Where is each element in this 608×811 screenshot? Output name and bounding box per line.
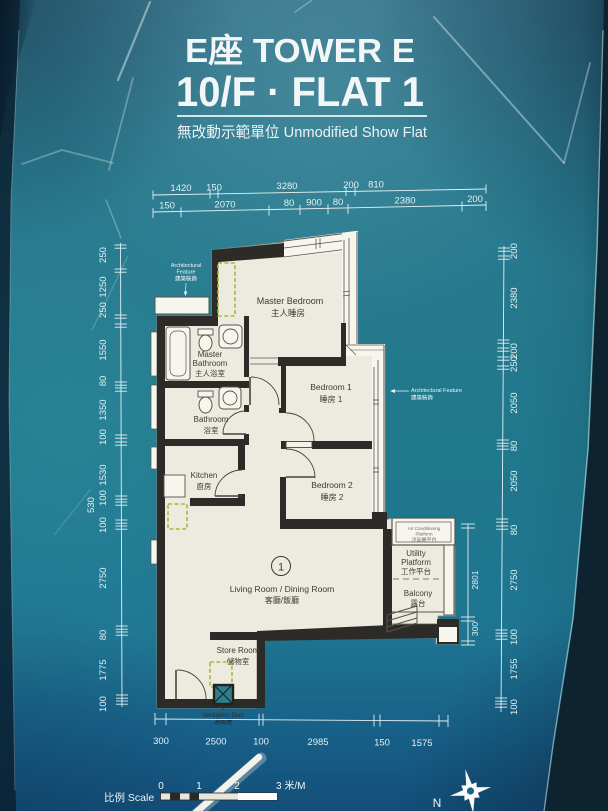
svg-text:80: 80 bbox=[284, 198, 295, 209]
svg-text:無改動示範單位 Unmodified Show Flat: 無改動示範單位 Unmodified Show Flat bbox=[177, 123, 428, 141]
svg-text:主人睡房: 主人睡房 bbox=[271, 308, 305, 318]
svg-text:2070: 2070 bbox=[214, 200, 235, 211]
svg-text:2750: 2750 bbox=[98, 567, 109, 588]
svg-text:1550: 1550 bbox=[98, 339, 109, 360]
svg-text:睡房 1: 睡房 1 bbox=[320, 394, 343, 404]
svg-text:Architectural Feature: Architectural Feature bbox=[411, 388, 462, 394]
svg-text:2801: 2801 bbox=[470, 570, 480, 589]
svg-text:1: 1 bbox=[278, 562, 284, 574]
svg-text:3280: 3280 bbox=[276, 181, 297, 192]
svg-text:Bedroom 2: Bedroom 2 bbox=[311, 480, 353, 490]
svg-text:0: 0 bbox=[158, 781, 164, 792]
svg-text:80: 80 bbox=[98, 376, 109, 387]
svg-text:Store Room: Store Room bbox=[217, 646, 260, 655]
svg-text:3 米/M: 3 米/M bbox=[276, 779, 305, 792]
svg-text:2985: 2985 bbox=[307, 737, 328, 748]
svg-text:1: 1 bbox=[196, 781, 202, 792]
svg-text:150: 150 bbox=[206, 182, 222, 193]
svg-text:100: 100 bbox=[509, 699, 520, 715]
svg-text:150: 150 bbox=[159, 201, 175, 212]
svg-text:Platform: Platform bbox=[401, 558, 431, 567]
svg-text:10/F · FLAT 1: 10/F · FLAT 1 bbox=[176, 68, 424, 115]
svg-text:Master: Master bbox=[198, 350, 223, 359]
svg-text:1575: 1575 bbox=[411, 738, 432, 749]
svg-text:2500: 2500 bbox=[205, 736, 226, 747]
svg-text:儲物室: 儲物室 bbox=[227, 656, 250, 666]
svg-text:1530: 1530 bbox=[98, 464, 109, 485]
svg-text:睡房 2: 睡房 2 bbox=[321, 492, 344, 502]
svg-text:200: 200 bbox=[467, 194, 483, 205]
svg-text:100: 100 bbox=[509, 629, 520, 645]
svg-text:2: 2 bbox=[234, 781, 240, 792]
svg-text:200: 200 bbox=[343, 180, 359, 191]
svg-text:Ventilation Duct: Ventilation Duct bbox=[202, 713, 244, 719]
svg-text:100: 100 bbox=[253, 737, 269, 748]
svg-text:100: 100 bbox=[98, 490, 109, 506]
svg-text:廚房: 廚房 bbox=[197, 481, 212, 491]
svg-text:1775: 1775 bbox=[98, 659, 109, 680]
svg-text:2380: 2380 bbox=[509, 287, 520, 308]
svg-text:Air Conditioning: Air Conditioning bbox=[408, 526, 441, 531]
svg-text:1420: 1420 bbox=[170, 183, 191, 194]
svg-text:2050: 2050 bbox=[509, 470, 520, 491]
svg-text:建築裝飾: 建築裝飾 bbox=[175, 275, 198, 283]
svg-text:工作平台: 工作平台 bbox=[401, 566, 431, 576]
svg-text:250: 250 bbox=[98, 302, 109, 318]
svg-text:1350: 1350 bbox=[98, 399, 109, 420]
svg-text:建築裝飾: 建築裝飾 bbox=[411, 394, 434, 402]
svg-text:Balcony: Balcony bbox=[404, 589, 432, 598]
svg-text:2050: 2050 bbox=[509, 392, 520, 413]
svg-text:2380: 2380 bbox=[394, 196, 415, 207]
svg-text:Bathroom: Bathroom bbox=[194, 415, 229, 424]
svg-text:810: 810 bbox=[368, 180, 384, 191]
svg-text:Kitchen: Kitchen bbox=[191, 471, 218, 480]
svg-text:E座 TOWER E: E座 TOWER E bbox=[185, 32, 415, 69]
svg-text:900: 900 bbox=[306, 198, 322, 209]
svg-text:Bedroom 1: Bedroom 1 bbox=[310, 382, 352, 392]
svg-text:浴室: 浴室 bbox=[204, 425, 219, 435]
svg-text:250: 250 bbox=[509, 356, 520, 372]
svg-text:Bathroom: Bathroom bbox=[193, 359, 228, 368]
svg-text:530: 530 bbox=[86, 497, 97, 513]
svg-text:80: 80 bbox=[509, 441, 520, 452]
svg-text:1250: 1250 bbox=[98, 276, 109, 297]
svg-text:冷氣機平台: 冷氣機平台 bbox=[411, 537, 436, 544]
svg-text:Master Bedroom: Master Bedroom bbox=[257, 296, 324, 306]
svg-text:比例 Scale: 比例 Scale bbox=[104, 791, 154, 804]
svg-text:2750: 2750 bbox=[509, 569, 520, 590]
svg-text:80: 80 bbox=[509, 525, 520, 536]
svg-text:主人浴室: 主人浴室 bbox=[195, 368, 225, 378]
svg-text:Utility: Utility bbox=[406, 549, 426, 558]
svg-text:Living Room / Dining Room: Living Room / Dining Room bbox=[230, 584, 335, 594]
svg-text:100: 100 bbox=[98, 429, 109, 445]
svg-text:100: 100 bbox=[98, 517, 109, 533]
svg-text:80: 80 bbox=[98, 630, 109, 641]
svg-text:300: 300 bbox=[153, 736, 169, 747]
svg-text:Architectural: Architectural bbox=[171, 263, 202, 269]
svg-text:300: 300 bbox=[470, 622, 480, 636]
svg-text:1755: 1755 bbox=[509, 658, 520, 679]
svg-text:200: 200 bbox=[509, 243, 520, 259]
svg-text:N: N bbox=[433, 796, 442, 810]
svg-text:100: 100 bbox=[98, 696, 109, 712]
svg-text:250: 250 bbox=[98, 247, 109, 263]
svg-text:Platform: Platform bbox=[415, 532, 432, 537]
svg-text:150: 150 bbox=[374, 738, 390, 749]
svg-text:露台: 露台 bbox=[411, 598, 426, 608]
svg-text:80: 80 bbox=[333, 197, 344, 208]
svg-text:Feature: Feature bbox=[177, 270, 196, 276]
svg-text:客廳/飯廳: 客廳/飯廳 bbox=[265, 595, 299, 605]
